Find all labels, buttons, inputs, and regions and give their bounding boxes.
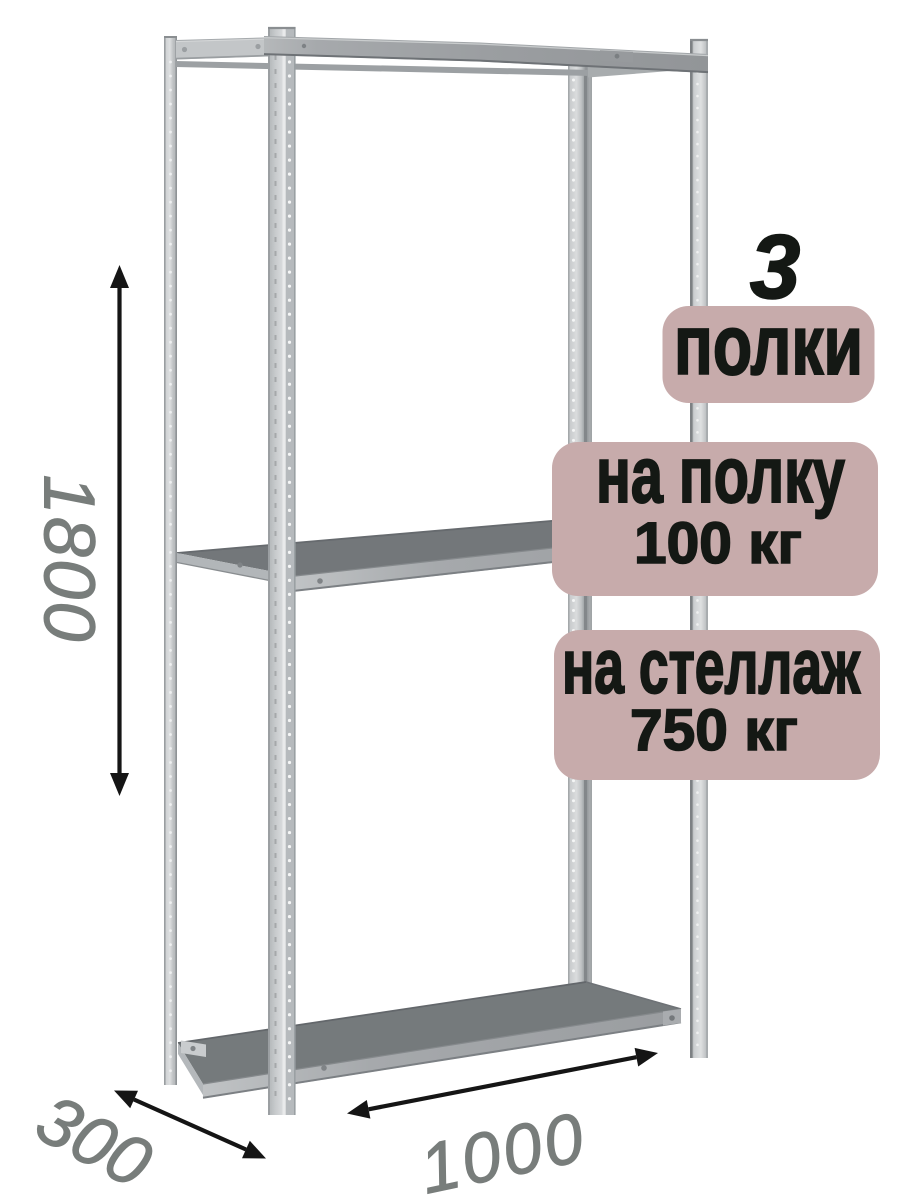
svg-text:300: 300 [24,1079,164,1200]
svg-text:на полку: на полку [596,430,845,519]
svg-text:1800: 1800 [29,475,109,644]
svg-text:100 кг: 100 кг [634,511,802,576]
svg-text:750 кг: 750 кг [630,698,798,763]
svg-text:полки: полки [674,298,863,392]
svg-text:1000: 1000 [413,1097,593,1200]
